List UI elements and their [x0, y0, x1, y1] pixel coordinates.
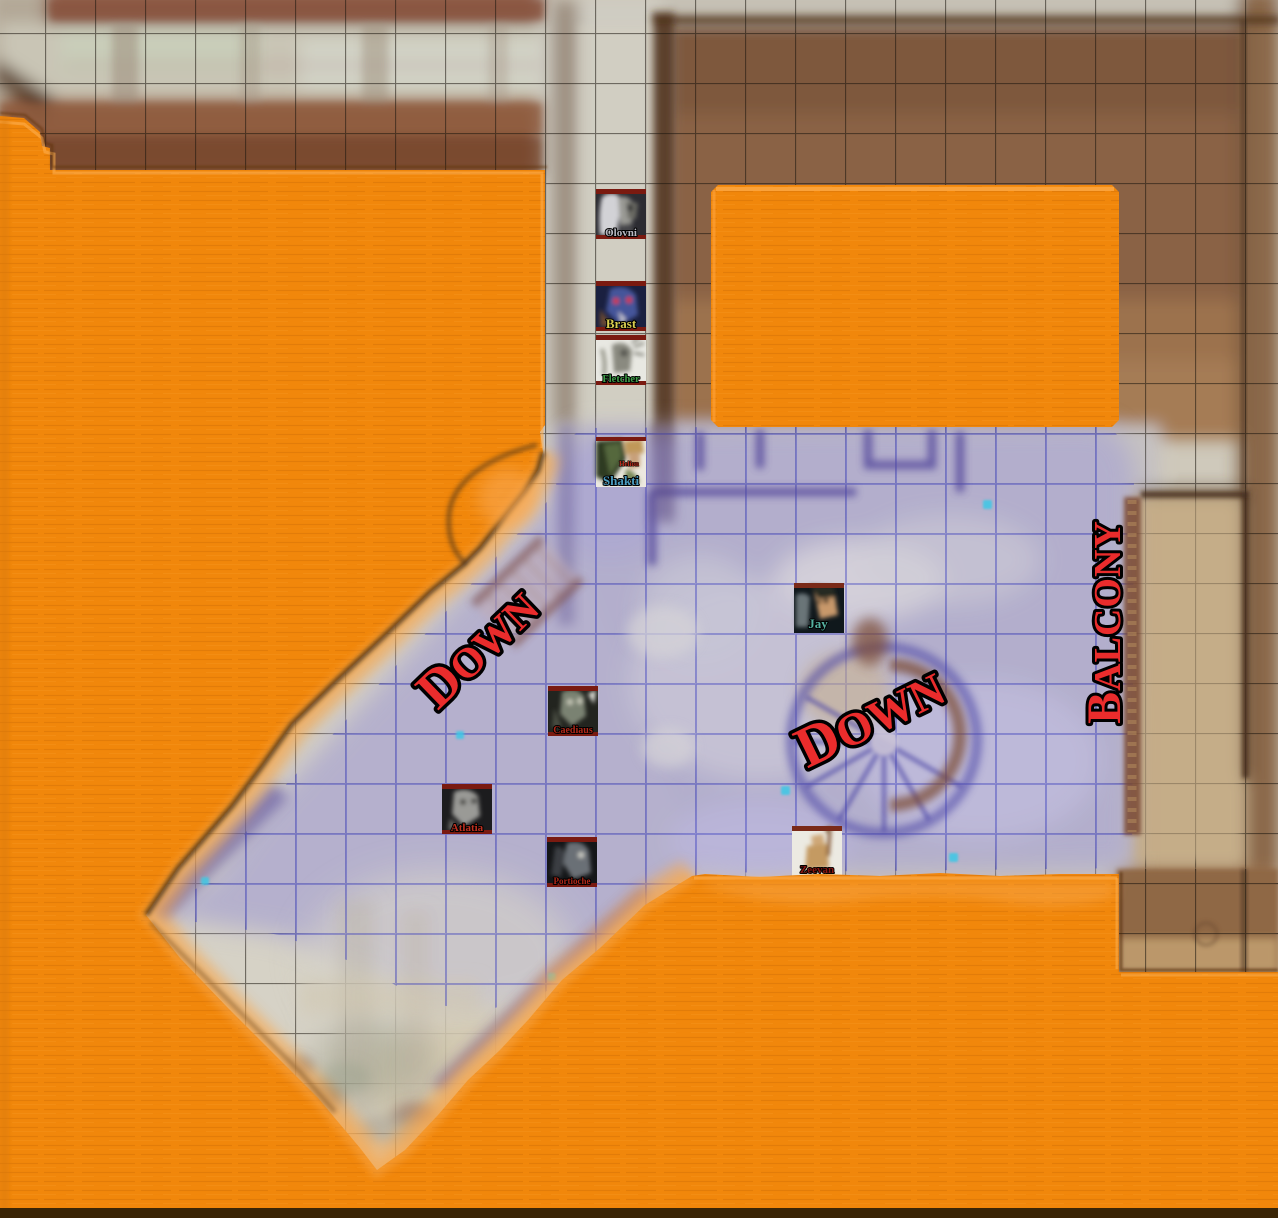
svg-text:Brast: Brast [606, 316, 637, 331]
svg-text:Atlatia: Atlatia [451, 822, 484, 834]
svg-text:Shakti: Shakti [603, 473, 640, 488]
svg-text:Portioche: Portioche [554, 876, 591, 886]
svg-text:Fletcher: Fletcher [602, 374, 640, 385]
svg-text:Helion: Helion [619, 460, 639, 468]
svg-text:Olovni: Olovni [605, 227, 637, 239]
svg-text:Caediaus: Caediaus [553, 725, 593, 736]
svg-text:Jay: Jay [808, 616, 828, 631]
